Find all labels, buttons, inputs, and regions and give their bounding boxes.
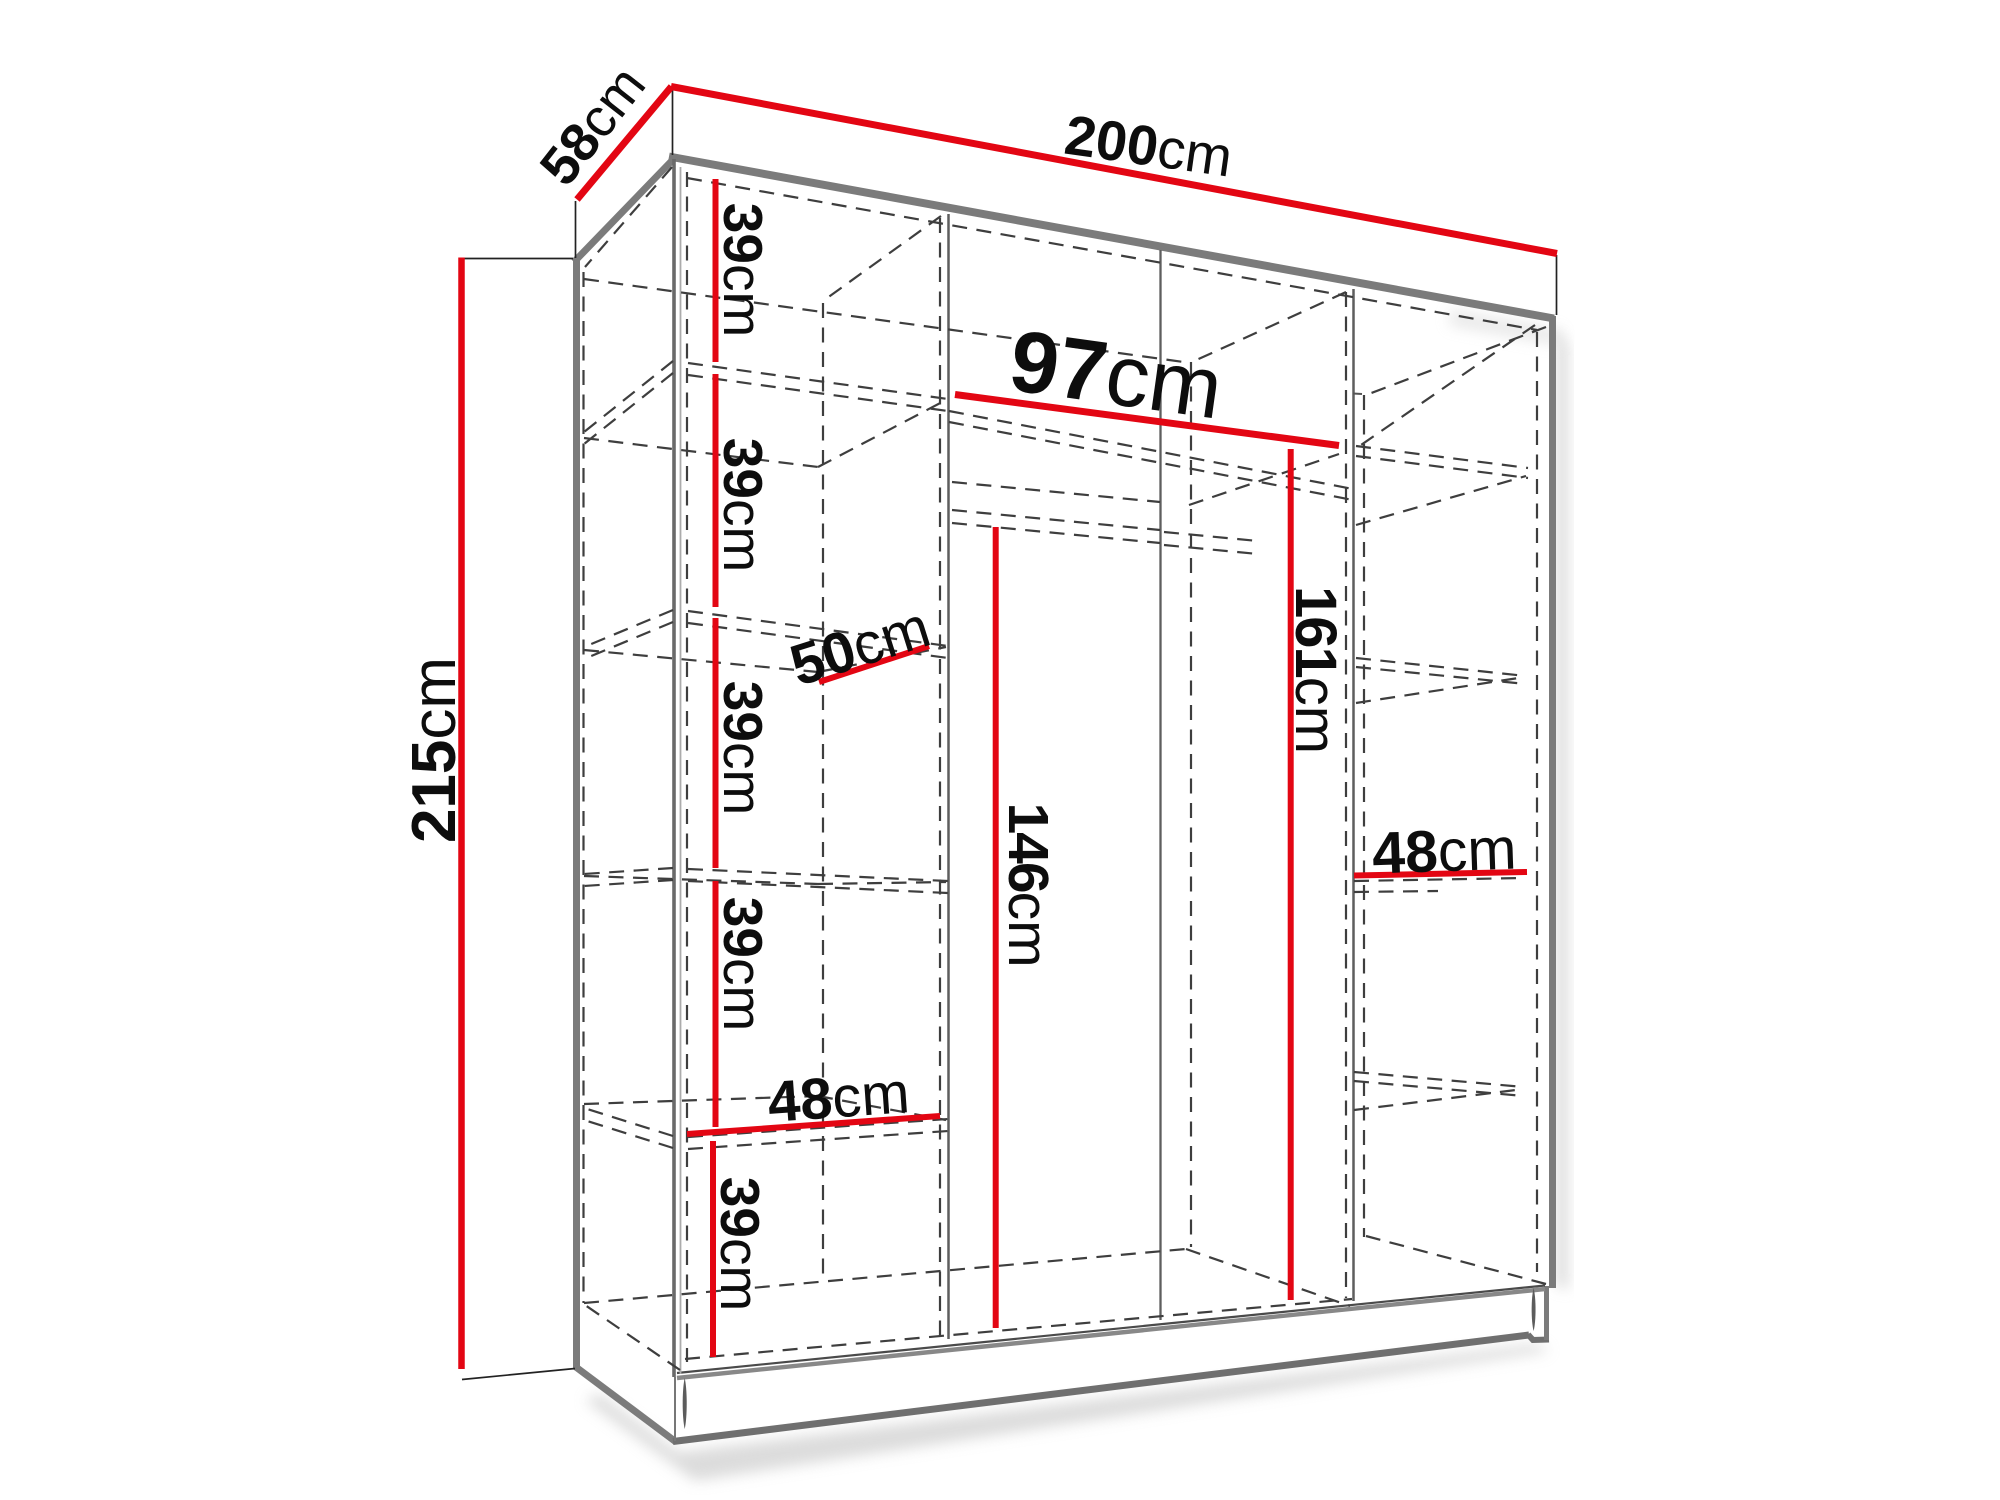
svg-text:39cm: 39cm [712,438,774,573]
svg-text:39cm: 39cm [709,1177,771,1312]
svg-text:161cm: 161cm [1283,586,1348,754]
svg-text:215cm: 215cm [400,657,469,843]
svg-text:48cm: 48cm [1371,816,1518,887]
svg-text:48cm: 48cm [766,1060,912,1135]
svg-text:39cm: 39cm [712,681,774,816]
svg-text:146cm: 146cm [996,802,1060,967]
svg-text:39cm: 39cm [712,203,774,338]
svg-text:39cm: 39cm [712,897,774,1032]
